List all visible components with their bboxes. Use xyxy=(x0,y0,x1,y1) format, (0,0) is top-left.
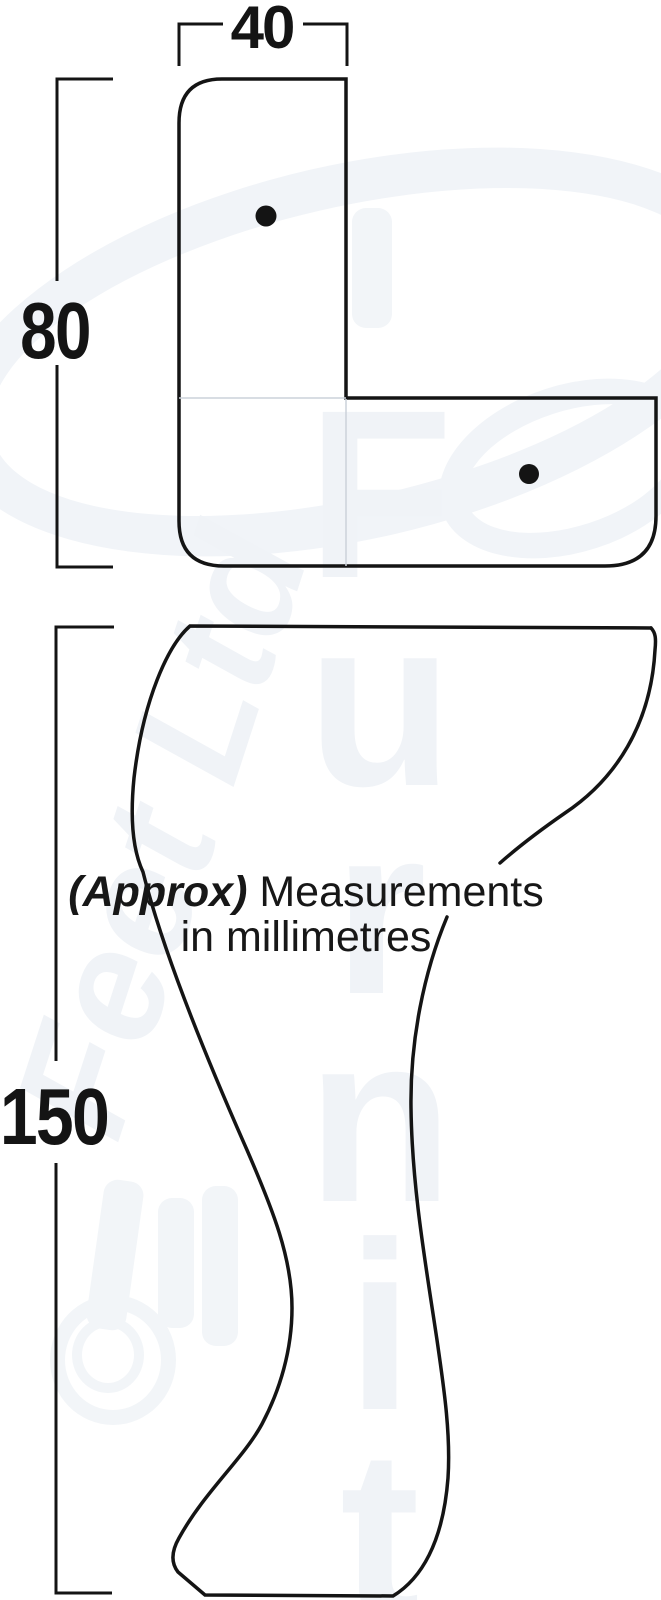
dimension-label-height-80: 80 xyxy=(20,291,90,371)
dimension-label-height-150: 150 xyxy=(0,1077,108,1157)
dimension-label-width-40: 40 xyxy=(231,0,294,58)
units-note: (Approx) Measurements in millimetres xyxy=(68,870,544,960)
side-view-leg-outline xyxy=(132,626,651,1596)
diagram-linework xyxy=(0,0,661,1600)
top-view-joint-lines xyxy=(179,398,346,566)
screw-hole-dot-vertical-arm xyxy=(256,206,277,227)
units-note-line1: (Approx) Measurements xyxy=(68,870,544,915)
units-note-approx: (Approx) xyxy=(68,868,247,916)
units-note-line2: in millimetres xyxy=(68,915,544,960)
screw-hole-dot-horizontal-arm xyxy=(519,464,539,484)
side-view-leg-knee-curve xyxy=(500,628,656,863)
dimension-diagram-canvas: Furniture Feet Ltd 40 80 150 (Approx) Me… xyxy=(0,0,661,1600)
units-note-measurements: Measurements xyxy=(259,868,543,916)
top-view-plate-outline xyxy=(179,79,656,566)
